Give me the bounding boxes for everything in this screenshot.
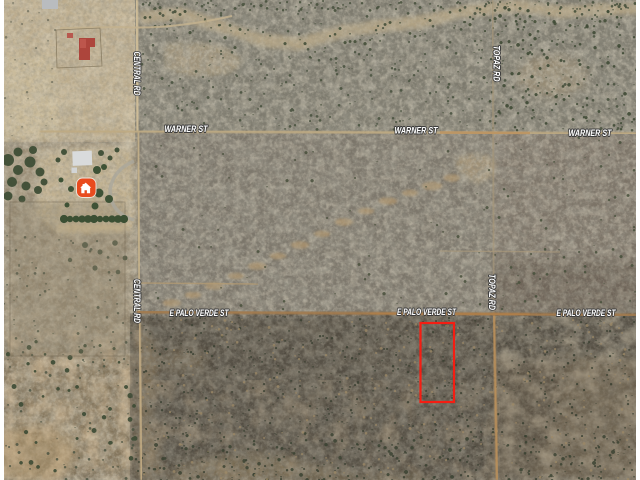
svg-text:WARNER ST: WARNER ST: [395, 126, 439, 136]
svg-text:TOPAZ RD: TOPAZ RD: [492, 46, 502, 83]
svg-text:CENTRAL RD: CENTRAL RD: [132, 279, 142, 323]
svg-text:TOPAZ RD: TOPAZ RD: [487, 274, 497, 311]
svg-text:E PALO VERDE ST: E PALO VERDE ST: [397, 307, 456, 317]
svg-text:WARNER ST: WARNER ST: [165, 124, 209, 134]
svg-text:E PALO VERDE ST: E PALO VERDE ST: [170, 308, 229, 318]
svg-text:WARNER ST: WARNER ST: [569, 128, 613, 138]
svg-text:E PALO VERDE ST: E PALO VERDE ST: [557, 308, 616, 318]
svg-text:CENTRAL RD: CENTRAL RD: [132, 52, 142, 96]
